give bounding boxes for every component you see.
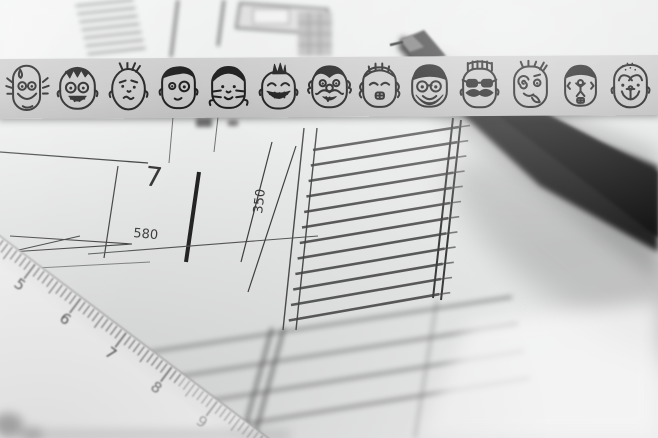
photograph-of-floor-plan: 7 580 350 5 6 7: [0, 0, 658, 438]
face-curly-mustache-anchor-goatee-icon: [608, 59, 653, 111]
face-dark-hair-cheering-doodle-icon: [558, 59, 603, 111]
face-sweatdrop-grin-icon: [5, 63, 50, 115]
ruler: 5 6 7 8 9: [0, 200, 335, 438]
room-number-label: 7: [143, 161, 164, 194]
face-spiral-eye-tongue-icon: [507, 60, 552, 112]
face-vampire-mustache-icon: [306, 61, 351, 113]
plan-stairs-blur: [76, 0, 146, 54]
face-mohawk-laughing-icon: [256, 61, 301, 113]
height-dimension-label: 350: [251, 188, 269, 214]
width-dimension-label: 580: [133, 226, 159, 243]
face-side-part-wide-eye-icon: [156, 62, 201, 114]
face-cap-goggle-eyes-beard-icon: [407, 60, 452, 112]
doodle-face-tape-strip: [0, 55, 658, 119]
face-bowl-cut-whiskers-icon: [206, 61, 251, 113]
face-antenna-worried-icon: [105, 62, 150, 114]
bright-paper-bottom-right: [420, 302, 658, 438]
face-messy-fringe-grin-icon: [55, 62, 100, 114]
face-flattop-sunglasses-mustache-icon: [457, 60, 502, 112]
face-slick-hair-pucker-icon: [357, 61, 402, 113]
